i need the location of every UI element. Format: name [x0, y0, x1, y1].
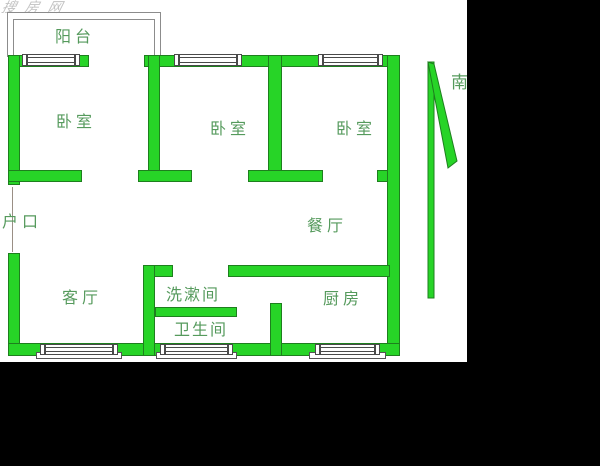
wall-divider2-cap — [248, 170, 323, 182]
label-kitchen: 厨房 — [323, 289, 363, 308]
label-entrance: 户口 — [2, 212, 42, 231]
window-bedroom3 — [318, 54, 383, 66]
wall-left-upper — [8, 55, 20, 185]
wall-left-lower — [8, 253, 20, 356]
label-south: 南 — [451, 68, 467, 93]
window-balcony — [22, 54, 80, 66]
label-living: 客厅 — [62, 288, 102, 307]
label-bedroom-2: 卧室 — [210, 119, 250, 138]
wall-bedroom1-south — [8, 170, 82, 182]
wall-bathroom-kitchen-divider — [270, 303, 282, 356]
wall-right — [387, 55, 400, 356]
wall-divider-bed1-bed2 — [148, 55, 160, 182]
window-living — [40, 344, 118, 355]
wall-living-washroom-divider — [143, 265, 155, 356]
label-bedroom-1: 卧室 — [56, 112, 96, 131]
label-bedroom-3: 卧室 — [336, 119, 376, 138]
floor-plan-canvas: 搜房网 — [0, 0, 467, 362]
window-bathroom — [160, 344, 233, 355]
window-kitchen — [315, 344, 380, 355]
label-washroom: 洗漱间 — [166, 285, 220, 304]
floor-plan-screen: 搜房网 — [0, 0, 600, 466]
wall-bedroom3-stub — [377, 170, 388, 182]
label-bathroom: 卫生间 — [174, 320, 228, 339]
wall-washroom-bathroom-divider — [155, 307, 237, 317]
wall-divider1-cap — [138, 170, 192, 182]
label-dining: 餐厅 — [307, 216, 347, 235]
label-balcony: 阳台 — [55, 27, 95, 46]
wall-dining-kitchen-divider — [228, 265, 390, 277]
wall-divider-bed2-bed3 — [268, 55, 282, 182]
window-bedroom2 — [174, 54, 242, 66]
